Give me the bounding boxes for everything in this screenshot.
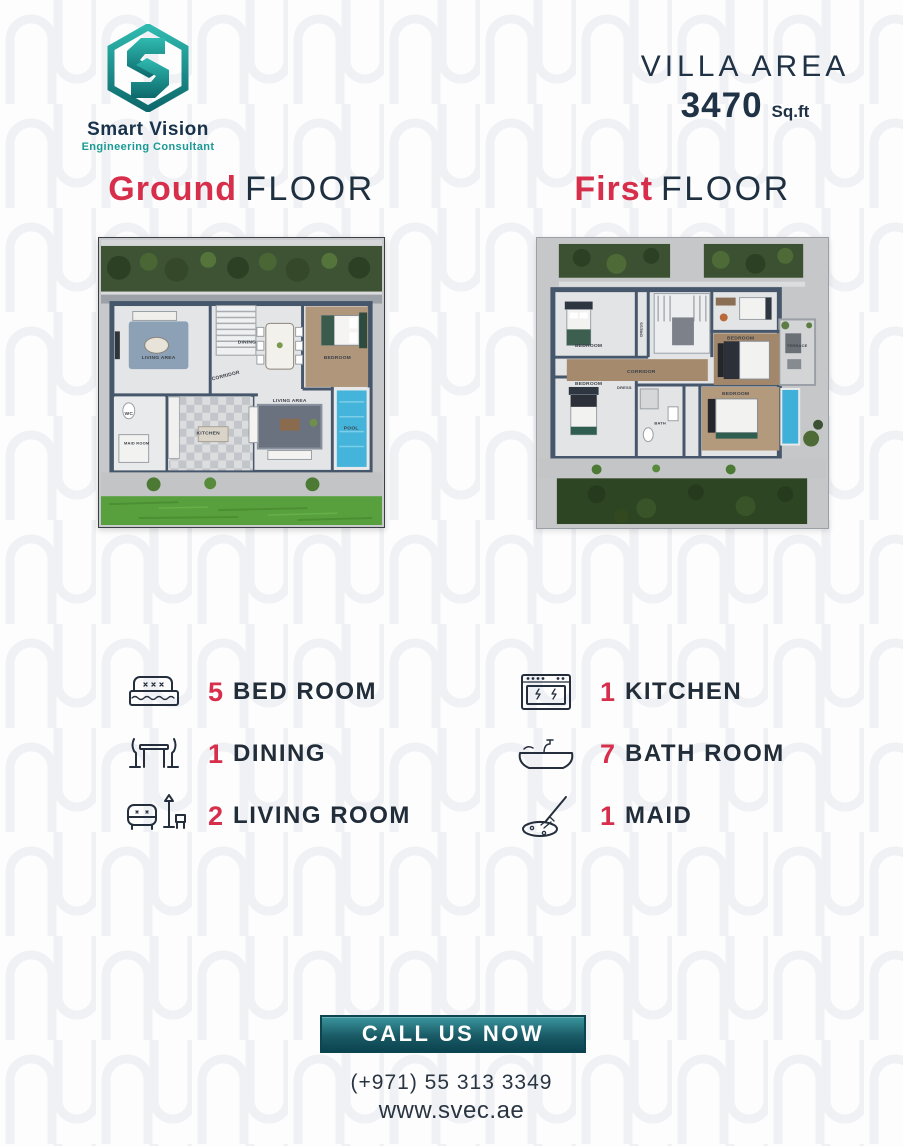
ground-floor-heading-rest: FLOOR: [245, 170, 375, 208]
maid-mop-icon: [508, 791, 584, 841]
ground-floor-plan: LIVING AREA DINING BEDROOM CORRIDOR KITC…: [98, 237, 385, 528]
feature-bath-room: 7 BATH ROOM: [508, 730, 785, 778]
villa-area-block: VILLA AREA 3470Sq.ft: [600, 50, 890, 126]
brand-block: Smart Vision Engineering Consultant: [38, 24, 258, 153]
plan-room-label: TERRACE: [787, 343, 808, 348]
feature-living-room: 2 LIVING ROOM: [116, 792, 411, 840]
features-left-column: 5 BED ROOM 1 DINING: [116, 668, 411, 840]
plan-room-label: BEDROOM: [722, 391, 749, 397]
feature-label: KITCHEN: [625, 678, 742, 706]
first-floor-heading-rest: FLOOR: [661, 170, 791, 208]
feature-label: LIVING ROOM: [233, 802, 411, 830]
kitchen-stove-icon: [508, 669, 584, 715]
plan-room-label: POOL: [344, 426, 359, 432]
feature-bed-room: 5 BED ROOM: [116, 668, 411, 716]
phone-number: (+971) 55 313 3349: [0, 1071, 903, 1095]
feature-dining: 1 DINING: [116, 730, 411, 778]
bathtub-icon: [508, 731, 584, 777]
plan-room-label: BEDROOM: [727, 335, 754, 341]
plan-room-label: MAID ROOM: [124, 441, 150, 446]
first-floor-heading: FirstFLOOR: [536, 170, 829, 216]
feature-count: 1: [600, 801, 615, 832]
brand-tagline: Engineering Consultant: [38, 141, 258, 153]
flyer-page: Smart Vision Engineering Consultant VILL…: [0, 0, 903, 1146]
features-right-column: 1 KITCHEN 7 BATH ROOM: [508, 668, 785, 840]
feature-count: 2: [208, 801, 223, 832]
bed-icon: [116, 669, 192, 715]
feature-kitchen: 1 KITCHEN: [508, 668, 785, 716]
feature-label: MAID: [625, 802, 692, 830]
feature-count: 7: [600, 739, 615, 770]
brand-name: Smart Vision: [38, 119, 258, 141]
ground-floor-heading-accent: Ground: [108, 170, 237, 208]
feature-count: 5: [208, 677, 223, 708]
ground-floor-heading: GroundFLOOR: [98, 170, 385, 216]
website-url: www.svec.ae: [0, 1097, 903, 1125]
plan-room-label: DRESS: [638, 322, 643, 337]
plan-room-label: KITCHEN: [197, 431, 221, 437]
feature-label: BED ROOM: [233, 678, 377, 706]
feature-maid: 1 MAID: [508, 792, 785, 840]
smart-vision-logo-icon: [107, 24, 189, 112]
plan-room-label: LIVING AREA: [273, 398, 307, 404]
villa-area-value: 3470: [681, 86, 763, 125]
living-room-icon: [116, 791, 192, 841]
villa-area-label: VILLA AREA: [600, 50, 890, 84]
plan-room-label: DRESS: [617, 385, 632, 390]
feature-label: DINING: [233, 740, 326, 768]
call-us-now-button[interactable]: CALL US NOW: [320, 1015, 586, 1053]
plan-room-label: BEDROOM: [324, 355, 351, 361]
plan-room-label: CORRIDOR: [627, 369, 656, 375]
plan-room-label: WC: [124, 411, 133, 417]
feature-count: 1: [208, 739, 223, 770]
plan-room-label: DINING: [238, 339, 257, 345]
plan-room-label: BATH: [654, 421, 666, 426]
plan-room-label: LIVING AREA: [142, 355, 176, 361]
first-floor-heading-accent: First: [574, 170, 653, 208]
dining-icon: [116, 731, 192, 777]
first-floor-plan: BEDROOM DRESS CORRIDOR BEDROOM TERRACE B…: [536, 237, 829, 529]
plan-room-label: BEDROOM: [575, 343, 602, 349]
villa-area-unit: Sq.ft: [772, 102, 810, 121]
feature-label: BATH ROOM: [625, 740, 785, 768]
plan-room-label: BEDROOM: [575, 381, 602, 387]
feature-count: 1: [600, 677, 615, 708]
